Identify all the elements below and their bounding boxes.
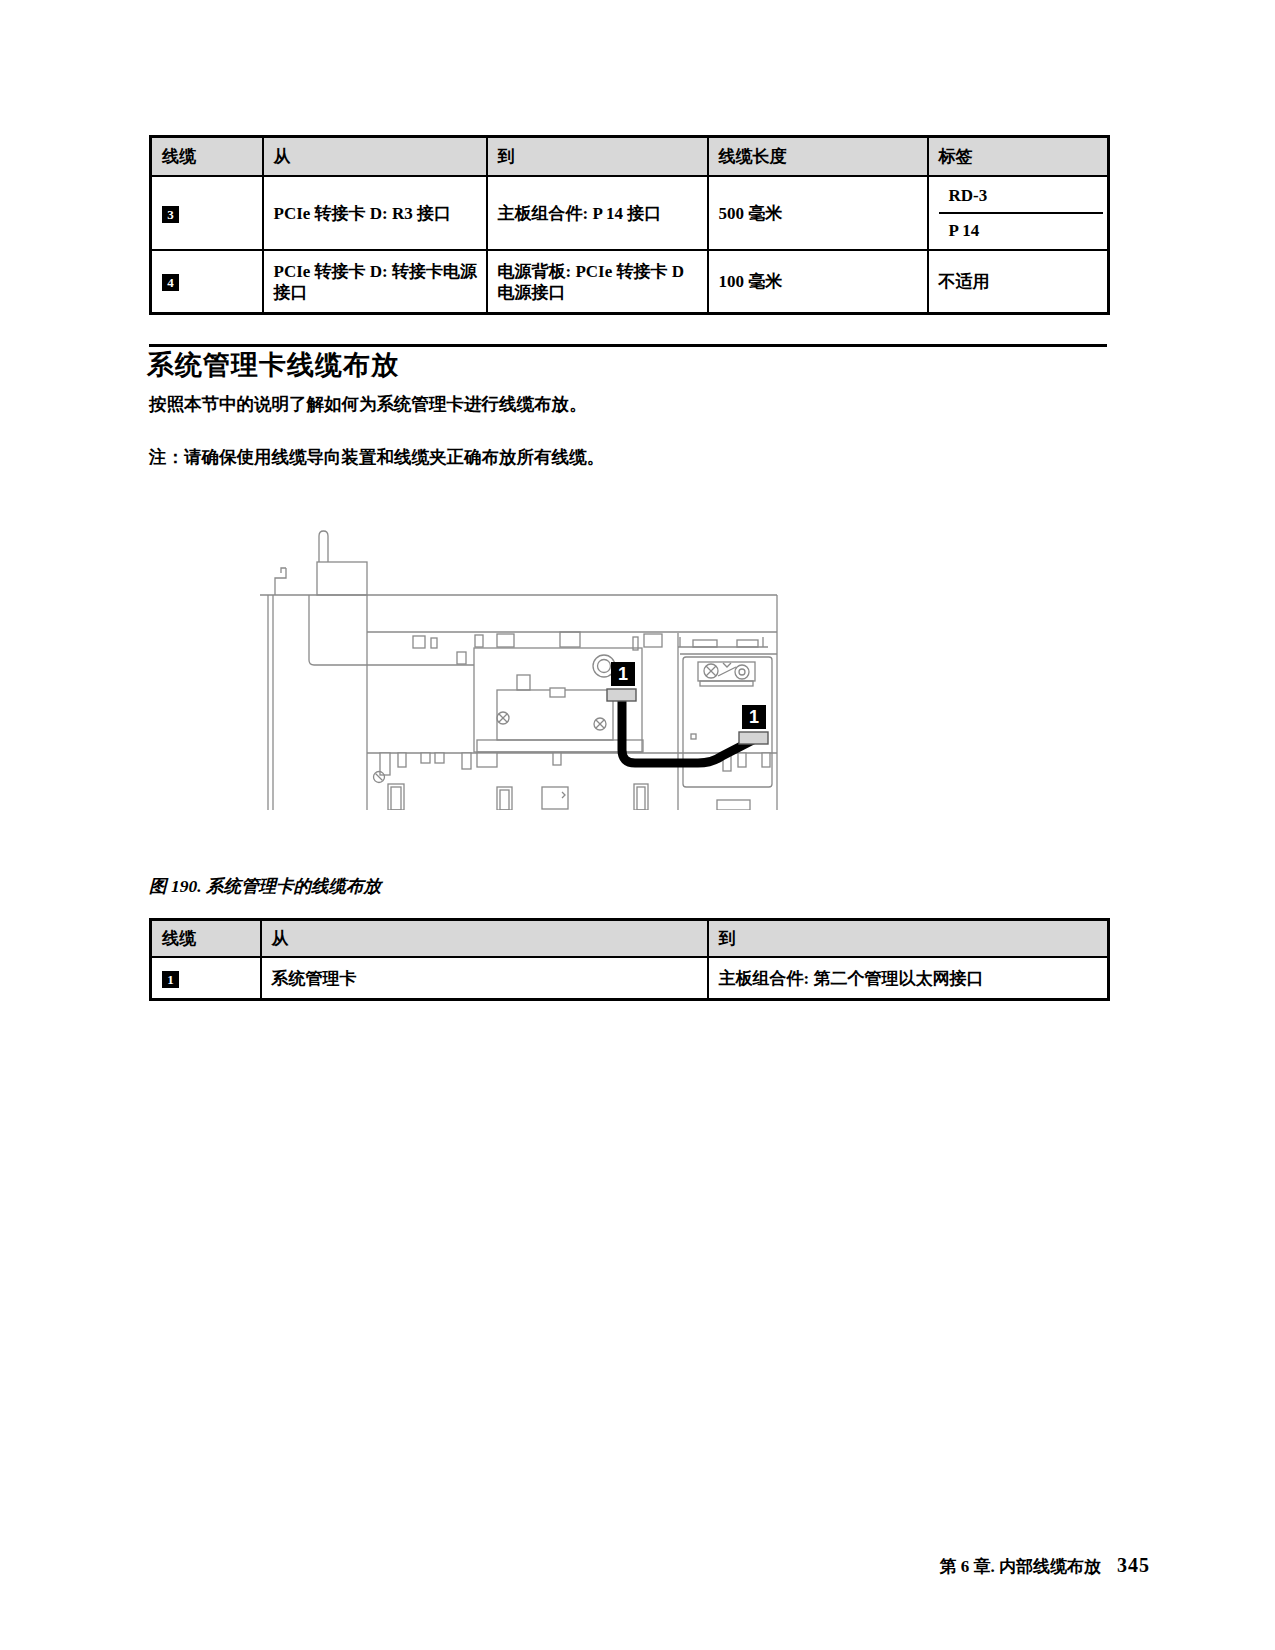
rear-band-components — [413, 632, 768, 650]
col-header-to: 到 — [708, 920, 1109, 958]
cell-from: PCIe 转接卡 D: 转接卡电源接口 — [263, 250, 487, 314]
section-note: 注：请确保使用线缆导向装置和线缆夹正确布放所有线缆。 — [149, 446, 1107, 468]
screw-icon — [594, 718, 606, 730]
manual-page: 线缆 从 到 线缆长度 标签 3 PCIe 转接卡 D: R3 接口 主板组合件… — [0, 0, 1275, 1650]
col-header-length: 线缆长度 — [708, 137, 928, 177]
figure-callout-1-right: 1 — [742, 705, 766, 729]
cell-callout: 1 — [151, 957, 261, 1000]
col-header-to: 到 — [487, 137, 708, 177]
table-header-row: 线缆 从 到 — [151, 920, 1109, 958]
table-row-cable-1: 1 系统管理卡 主板组合件: 第二个管理以太网接口 — [151, 957, 1109, 1000]
cable-table-sysmgmt-table: 线缆 从 到 1 系统管理卡 主板组合件: 第二个管理以太网接口 — [149, 918, 1110, 1001]
svg-text:1: 1 — [749, 707, 759, 727]
footer-chapter-title: 第 6 章. 内部线缆布放 — [940, 1557, 1102, 1576]
cell-labels: RD-3 P 14 — [928, 176, 1109, 250]
figure-callout-1-left: 1 — [611, 662, 635, 686]
svg-text:1: 1 — [618, 664, 628, 684]
col-header-cable: 线缆 — [151, 137, 263, 177]
cell-to: 电源背板: PCIe 转接卡 D 电源接口 — [487, 250, 708, 314]
cable-table-pcie: 线缆 从 到 线缆长度 标签 3 PCIe 转接卡 D: R3 接口 主板组合件… — [149, 135, 1110, 315]
cell-from: 系统管理卡 — [261, 957, 708, 1000]
col-header-cable: 线缆 — [151, 920, 261, 958]
table-row-cable-4: 4 PCIe 转接卡 D: 转接卡电源接口 电源背板: PCIe 转接卡 D 电… — [151, 250, 1109, 314]
cell-callout: 3 — [151, 176, 263, 250]
screw-icon — [497, 712, 509, 724]
section-divider-rule — [149, 344, 1107, 347]
server-board-diagram: 1 1 — [250, 500, 780, 810]
cell-callout: 4 — [151, 250, 263, 314]
section-intro: 按照本节中的说明了解如何为系统管理卡进行线缆布放。 — [149, 393, 1107, 415]
cell-length: 500 毫米 — [708, 176, 928, 250]
cable-table-sysmgmt: 线缆 从 到 1 系统管理卡 主板组合件: 第二个管理以太网接口 — [149, 918, 1110, 1001]
server-board-diagram-svg: 1 1 — [250, 500, 780, 810]
lower-board-components — [374, 772, 751, 811]
page-footer: 第 6 章. 内部线缆布放345 — [0, 1554, 1150, 1578]
col-header-label: 标签 — [928, 137, 1109, 177]
chassis-outline — [260, 531, 777, 810]
cell-to: 主板组合件: P 14 接口 — [487, 176, 708, 250]
col-header-from: 从 — [263, 137, 487, 177]
section-title: 系统管理卡线缆布放 — [147, 350, 399, 381]
cell-length: 100 毫米 — [708, 250, 928, 314]
cell-to: 主板组合件: 第二个管理以太网接口 — [708, 957, 1109, 1000]
label-p14: P 14 — [939, 214, 1104, 247]
callout-badge-4: 4 — [162, 274, 179, 291]
callout-badge-1: 1 — [162, 971, 179, 988]
cell-from: PCIe 转接卡 D: R3 接口 — [263, 176, 487, 250]
cable-table-pcie-table: 线缆 从 到 线缆长度 标签 3 PCIe 转接卡 D: R3 接口 主板组合件… — [149, 135, 1110, 315]
label-rd3: RD-3 — [939, 179, 1104, 214]
figure-caption: 图 190. 系统管理卡的线缆布放 — [149, 874, 381, 898]
col-header-from: 从 — [261, 920, 708, 958]
connector-system-management-card — [607, 689, 636, 701]
callout-badge-3: 3 — [162, 206, 179, 223]
footer-page-number: 345 — [1117, 1554, 1150, 1576]
table-row-cable-3: 3 PCIe 转接卡 D: R3 接口 主板组合件: P 14 接口 500 毫… — [151, 176, 1109, 250]
cell-labels: 不适用 — [928, 250, 1109, 314]
table-header-row: 线缆 从 到 线缆长度 标签 — [151, 137, 1109, 177]
connector-ethernet-port — [739, 732, 768, 744]
